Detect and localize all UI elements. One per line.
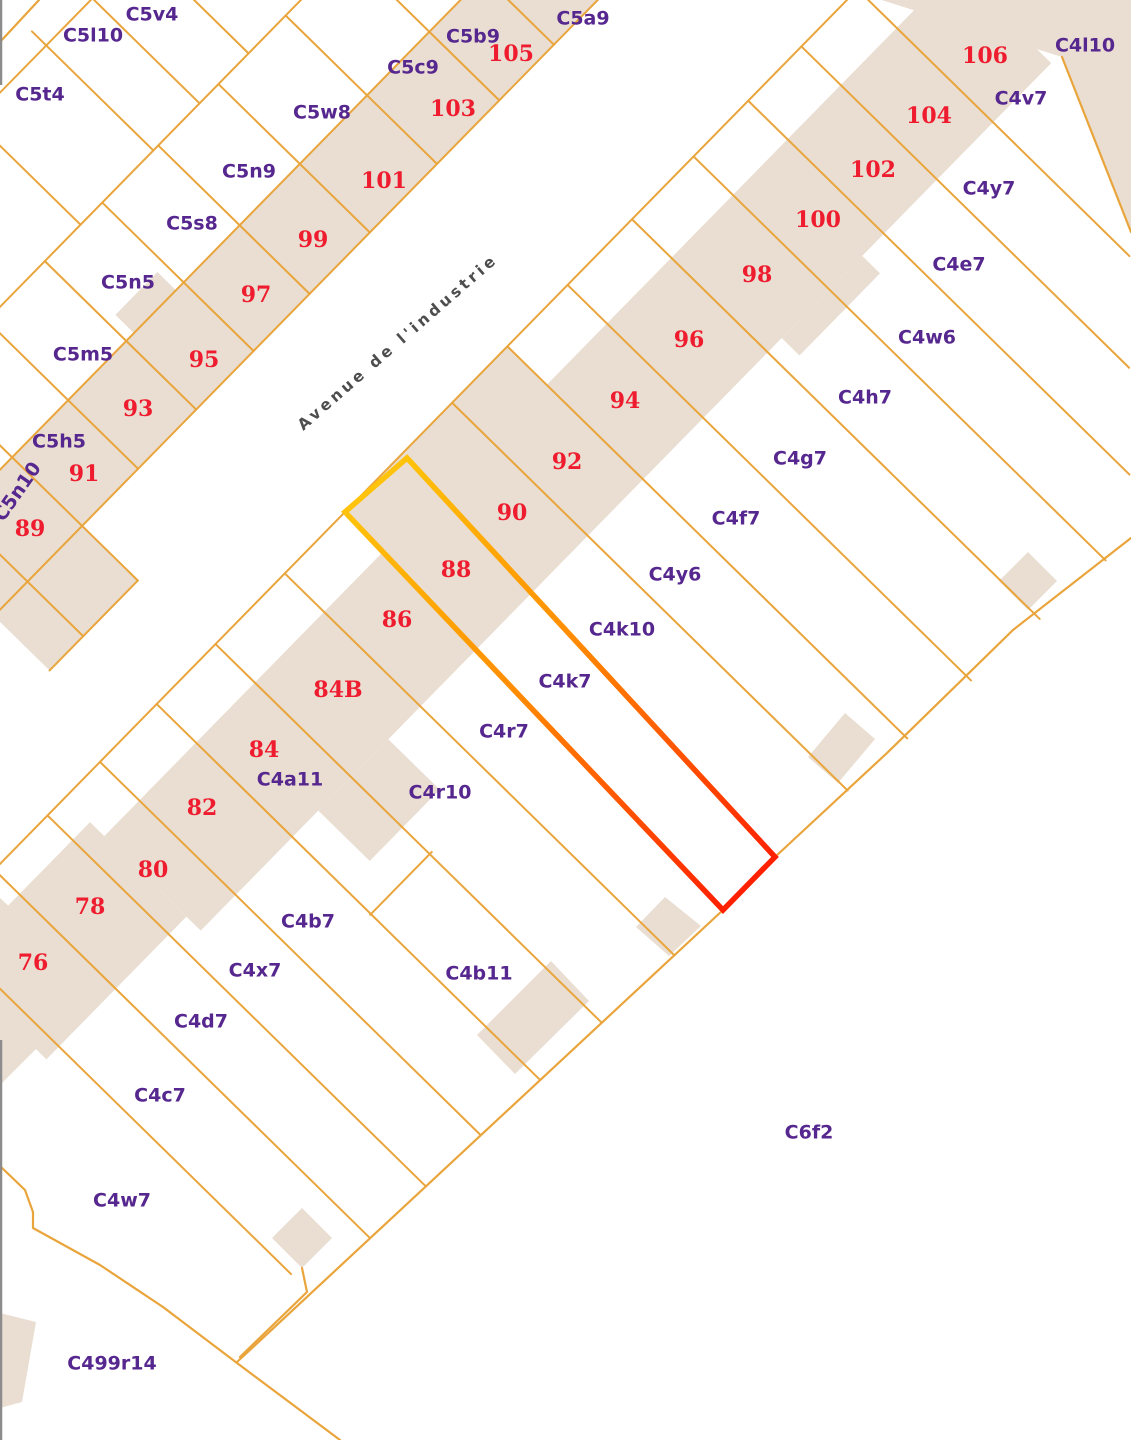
house-number-100: 100 bbox=[795, 207, 841, 233]
parcel-code-C4h7: C4h7 bbox=[838, 387, 892, 409]
parcel-code-C5b9: C5b9 bbox=[446, 26, 500, 48]
parcel-code-C4k10: C4k10 bbox=[589, 619, 655, 641]
parcel-code-C4c7: C4c7 bbox=[134, 1085, 186, 1107]
parcel-code-C499r14: C499r14 bbox=[67, 1353, 156, 1375]
house-number-90: 90 bbox=[497, 500, 528, 526]
parcel-code-C4d7: C4d7 bbox=[174, 1011, 228, 1033]
parcel-code-C5n9: C5n9 bbox=[222, 161, 276, 183]
parcel-code-C5l10: C5l10 bbox=[63, 25, 123, 47]
house-number-94: 94 bbox=[610, 388, 641, 414]
map-viewport[interactable]: Avenue de l'industrie767880828484B868890… bbox=[0, 0, 1131, 1440]
parcel-code-C4r10: C4r10 bbox=[409, 782, 472, 804]
parcel-code-C5a9: C5a9 bbox=[556, 8, 609, 30]
house-number-89: 89 bbox=[15, 516, 46, 542]
house-number-84: 84 bbox=[249, 737, 280, 763]
parcel-code-C4b11: C4b11 bbox=[445, 963, 512, 985]
parcel-code-C5n5: C5n5 bbox=[101, 272, 155, 294]
parcel-code-C5s8: C5s8 bbox=[166, 213, 218, 235]
parcel-code-C4w7: C4w7 bbox=[93, 1190, 151, 1212]
house-number-103: 103 bbox=[430, 96, 476, 122]
parcel-code-C6f2: C6f2 bbox=[785, 1122, 834, 1144]
parcel-code-C4w6: C4w6 bbox=[898, 327, 956, 349]
house-number-78: 78 bbox=[75, 894, 106, 920]
parcel-code-C5v4: C5v4 bbox=[126, 4, 179, 26]
cadastral-map: Avenue de l'industrie767880828484B868890… bbox=[0, 0, 1131, 1440]
house-number-91: 91 bbox=[69, 461, 100, 487]
parcel-code-C4b7: C4b7 bbox=[281, 911, 335, 933]
house-number-84B: 84B bbox=[313, 677, 362, 703]
parcel-code-C5t4: C5t4 bbox=[15, 84, 64, 106]
parcel-code-C4r7: C4r7 bbox=[479, 721, 529, 743]
house-number-95: 95 bbox=[189, 347, 220, 373]
parcel-code-C4k7: C4k7 bbox=[538, 671, 591, 693]
parcel-code-C4l10: C4l10 bbox=[1055, 35, 1115, 57]
house-number-97: 97 bbox=[241, 282, 272, 308]
house-number-88: 88 bbox=[441, 557, 472, 583]
house-number-101: 101 bbox=[361, 168, 407, 194]
parcel-code-C5m5: C5m5 bbox=[53, 344, 113, 366]
parcel-code-C5c9: C5c9 bbox=[387, 57, 439, 79]
house-number-80: 80 bbox=[138, 857, 169, 883]
house-number-104: 104 bbox=[906, 103, 952, 129]
house-number-86: 86 bbox=[382, 607, 413, 633]
parcel-code-C4y7: C4y7 bbox=[963, 178, 1016, 200]
house-number-76: 76 bbox=[18, 950, 49, 976]
parcel-code-C5h5: C5h5 bbox=[32, 431, 86, 453]
parcel-code-C4e7: C4e7 bbox=[932, 254, 985, 276]
house-number-82: 82 bbox=[187, 795, 218, 821]
parcel-code-C4v7: C4v7 bbox=[995, 88, 1048, 110]
house-number-102: 102 bbox=[850, 157, 896, 183]
parcel-code-C4a11: C4a11 bbox=[257, 769, 323, 791]
house-number-93: 93 bbox=[123, 396, 154, 422]
house-number-106: 106 bbox=[962, 43, 1008, 69]
house-number-92: 92 bbox=[552, 449, 583, 475]
parcel-code-C4g7: C4g7 bbox=[773, 448, 827, 470]
house-number-98: 98 bbox=[742, 262, 773, 288]
parcel-code-C5w8: C5w8 bbox=[293, 102, 351, 124]
parcel-code-C4f7: C4f7 bbox=[712, 508, 761, 530]
parcel-code-C4y6: C4y6 bbox=[649, 564, 702, 586]
parcel-code-C4x7: C4x7 bbox=[229, 960, 282, 982]
house-number-99: 99 bbox=[298, 227, 329, 253]
house-number-96: 96 bbox=[674, 327, 705, 353]
